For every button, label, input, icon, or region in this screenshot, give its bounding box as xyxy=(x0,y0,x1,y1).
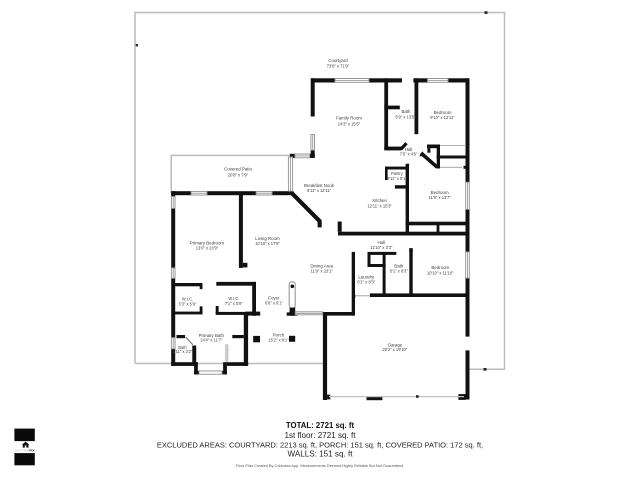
svg-text:WALLS: 151 sq. ft: WALLS: 151 sq. ft xyxy=(288,450,354,459)
svg-text:6'8" x 6'1": 6'8" x 6'1" xyxy=(265,300,283,305)
svg-text:73'8" x 71'9": 73'8" x 71'9" xyxy=(327,64,350,69)
svg-text:TOTAL: 2721 sq. ft: TOTAL: 2721 sq. ft xyxy=(286,421,355,430)
svg-text:Dining Area: Dining Area xyxy=(310,263,333,268)
svg-text:12'11" x 15'3": 12'11" x 15'3" xyxy=(367,204,392,209)
svg-text:11'9" x 13'7": 11'9" x 13'7" xyxy=(429,195,452,200)
svg-text:Covered Patio: Covered Patio xyxy=(224,166,252,171)
svg-text:1st floor: 2721 sq. ft: 1st floor: 2721 sq. ft xyxy=(284,431,356,440)
svg-text:10'10" x 11'10": 10'10" x 11'10" xyxy=(427,270,454,275)
svg-text:Courtyard: Courtyard xyxy=(328,58,348,63)
svg-text:14'3" x 15'5": 14'3" x 15'5" xyxy=(338,121,361,126)
svg-text:11'10" x 3'3": 11'10" x 3'3" xyxy=(370,245,393,250)
svg-text:EXCLUDED AREAS: COURTYARD: 221: EXCLUDED AREAS: COURTYARD: 2213 sq. ft, … xyxy=(157,441,483,450)
svg-text:Living Room: Living Room xyxy=(255,236,280,241)
svg-text:3'11" x 5'1": 3'11" x 5'1" xyxy=(387,176,407,181)
svg-text:6'1" x 8'3": 6'1" x 8'3" xyxy=(357,279,375,284)
svg-text:SHUTTERPIX: SHUTTERPIX xyxy=(15,448,36,452)
svg-text:5'3" x 5'9": 5'3" x 5'9" xyxy=(179,301,197,306)
svg-text:14'4" x 11'7": 14'4" x 11'7" xyxy=(200,338,223,343)
svg-text:11'9" x 23'1": 11'9" x 23'1" xyxy=(311,269,334,274)
svg-text:13'0" x 23'9": 13'0" x 23'9" xyxy=(196,245,219,250)
svg-text:5'9" x 13'5": 5'9" x 13'5" xyxy=(395,114,416,119)
svg-text:7'1" x 5'9": 7'1" x 5'9" xyxy=(225,301,243,306)
svg-text:5'1" x 8'3": 5'1" x 8'3" xyxy=(390,269,408,274)
svg-text:9'11" x 12'11": 9'11" x 12'11" xyxy=(307,188,332,193)
svg-text:20'2" x 19'10": 20'2" x 19'10" xyxy=(383,347,408,352)
svg-text:Kitchen: Kitchen xyxy=(372,198,387,203)
svg-text:10'10" x 17'8": 10'10" x 17'8" xyxy=(255,241,280,246)
svg-text:Family Room: Family Room xyxy=(336,116,362,121)
svg-text:20'8" x 7'9": 20'8" x 7'9" xyxy=(228,172,249,177)
svg-text:7'6" x 4'6": 7'6" x 4'6" xyxy=(400,152,418,157)
svg-text:Floor Plan Created By Cubicasa: Floor Plan Created By Cubicasa App. Meas… xyxy=(236,464,405,468)
svg-text:9'10" x 12'11": 9'10" x 12'11" xyxy=(430,115,455,120)
svg-text:W.I.C.: W.I.C. xyxy=(228,296,239,301)
svg-text:15'2" x 9'1": 15'2" x 9'1" xyxy=(268,337,289,342)
svg-text:3'11" x 3'2": 3'11" x 3'2" xyxy=(173,349,193,354)
